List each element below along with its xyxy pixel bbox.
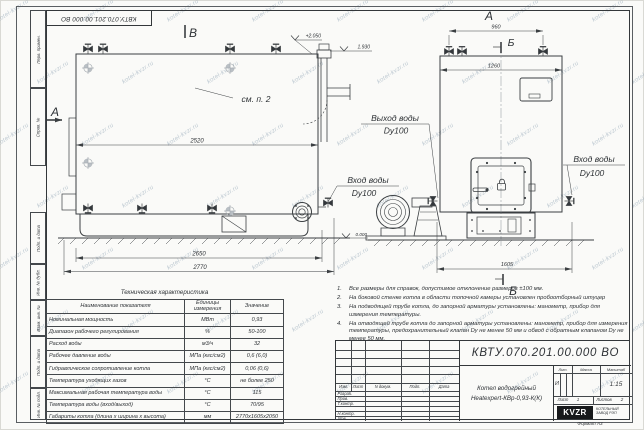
margin-field-label: Подп. и дата xyxy=(36,225,41,252)
title-block: КВТУ.070.201.00.000 ВО Изм. Лист N докум… xyxy=(335,340,630,420)
spec-cell: % xyxy=(185,326,231,338)
format-note: Формат А3 xyxy=(540,421,640,426)
spec-col-header: Значение xyxy=(231,299,284,314)
doc-number: КВТУ.070.201.00.000 ВО xyxy=(472,347,619,359)
spec-col-header: Наименование показателя xyxy=(47,299,185,314)
spec-cell: Гидравлическое сопротивление котла xyxy=(47,363,185,375)
spec-cell: 0,6 (6,0) xyxy=(231,351,284,363)
margin-field-label: Перв. примен. xyxy=(36,35,41,64)
spec-row: Расход водым3/ч32 xyxy=(47,338,284,350)
note-item: 1.Все размеры для справок, допустимое от… xyxy=(337,286,629,294)
spec-cell: 32 xyxy=(231,338,284,350)
sheets-label: Листов xyxy=(594,396,614,404)
margin-field-perv-primen: Перв. примен. xyxy=(30,10,46,88)
scale-label: Масштаб xyxy=(600,366,632,373)
spec-cell: не более 250 xyxy=(231,375,284,387)
spec-cell: 115 xyxy=(231,387,284,399)
product-name-cell: Котел водогрейный Heatexpert-КВр-0,93-К(… xyxy=(459,366,553,421)
spec-cell: 2770х1605х2050 xyxy=(231,411,284,423)
spec-cell: Температура уходящих газов xyxy=(47,375,185,387)
note-number: 2. xyxy=(337,295,349,303)
margin-field-label: Справ. № xyxy=(36,117,41,137)
notes-section: 1.Все размеры для справок, допустимое от… xyxy=(337,286,629,343)
company-line2: ЗАВОД РЭП xyxy=(596,411,630,415)
spec-row: Номинальная мощностьМВт0,93 xyxy=(47,314,284,326)
grid-line xyxy=(336,374,459,375)
sheets-value: 2 xyxy=(616,396,628,404)
corner-stamp-text: КВТУ.070.201.00.000 ВО xyxy=(61,15,137,22)
tb-col-izm: Изм. xyxy=(336,383,351,391)
note-number: 3. xyxy=(337,304,349,319)
spec-row: Максимальная рабочая температура воды°С1… xyxy=(47,387,284,399)
drawing-sheet: kotel-kvzr.rukotel-kvzr.rukotel-kvzr.ruk… xyxy=(0,0,644,430)
spec-cell: Расход воды xyxy=(47,338,185,350)
spec-header-row: Наименование показателя Единицы измерени… xyxy=(47,299,284,314)
spec-col-header: Единицы измерения xyxy=(185,299,231,314)
grid-line xyxy=(401,341,402,421)
grid-line xyxy=(429,341,430,421)
spec-cell: Рабочее давление воды xyxy=(47,351,185,363)
spec-cell: 70/95 xyxy=(231,399,284,411)
spec-cell: МПа (кгс/см2) xyxy=(185,363,231,375)
spec-cell: °С xyxy=(185,375,231,387)
doc-number-cell: КВТУ.070.201.00.000 ВО xyxy=(459,341,631,366)
spec-row: Гидравлическое сопротивление котлаМПа (к… xyxy=(47,363,284,375)
mass-label: Масса xyxy=(572,366,600,373)
spec-section: Техническая характеристика Наименование … xyxy=(46,289,283,424)
spec-row: Диапазон рабочего регулирования%50-100 xyxy=(47,326,284,338)
note-text: На подводящей трубе котла, до запорной а… xyxy=(349,304,629,319)
kvzr-logo: KVZR xyxy=(557,406,593,419)
tb-col-podp: Подп. xyxy=(401,383,429,391)
note-text: Все размеры для справок, допустимое откл… xyxy=(349,286,543,294)
tb-col-list: Лист xyxy=(351,383,365,391)
margin-field-vzam-inv: Взам. инв. № xyxy=(30,300,46,336)
margin-field-podp-data-1: Подп. и дата xyxy=(30,212,46,264)
spec-cell: Максимальная рабочая температура воды xyxy=(47,387,185,399)
margin-field-label: Взам. инв. № xyxy=(36,305,41,332)
grid-line xyxy=(336,358,459,359)
product-name-line1: Котел водогрейный xyxy=(477,384,536,393)
sheet-label: Лист xyxy=(555,396,571,404)
product-name-line2: Heatexpert-КВр-0,93-К(К) xyxy=(471,394,542,403)
note-item: 3.На подводящей трубе котла, до запорной… xyxy=(337,304,629,319)
note-text: На боковой стенке котла в области топочн… xyxy=(349,295,605,303)
company-name: КОТЕЛЬНЫЙ ЗАВОД РЭП xyxy=(596,407,630,416)
spec-row: Температура уходящих газов°Сне более 250 xyxy=(47,375,284,387)
spec-cell: 0,93 xyxy=(231,314,284,326)
note-number: 1. xyxy=(337,286,349,294)
spec-cell: °С xyxy=(185,387,231,399)
margin-field-sprav: Справ. № xyxy=(30,88,46,166)
tb-col-data: Дата xyxy=(429,383,459,391)
grid-line xyxy=(336,366,459,367)
spec-cell: Номинальная мощность xyxy=(47,314,185,326)
grid-line xyxy=(365,341,366,421)
margin-field-label: Инв. № подл. xyxy=(36,391,41,418)
margin-field-inv-dubl: Инв. № дубл. xyxy=(30,264,46,300)
spec-table-title: Техническая характеристика xyxy=(46,289,283,296)
grid-line xyxy=(336,350,459,351)
spec-row: Температура воды (вход/выход)°С70/95 xyxy=(47,399,284,411)
spec-cell: мм xyxy=(185,411,231,423)
sheet-value: 1 xyxy=(573,396,583,404)
lit-mass-scale-block: Лит. Масса Масштаб И 1:15 Лист 1 Листов … xyxy=(553,366,631,421)
lit-value: И xyxy=(554,373,560,396)
grid-line xyxy=(566,373,567,396)
spec-table: Наименование показателя Единицы измерени… xyxy=(46,299,284,425)
grid-line xyxy=(554,404,632,405)
spec-row: Рабочее давление водыМПа (кгс/см2)0,6 (6… xyxy=(47,351,284,363)
tb-col-dokum: N докум. xyxy=(365,383,401,391)
spec-cell: Габариты котла (длина х ширина х высота) xyxy=(47,411,185,423)
corner-stamp: КВТУ.070.201.00.000 ВО xyxy=(46,10,152,26)
margin-field-podp-data-2: Подп. и дата xyxy=(30,336,46,388)
scale-value: 1:15 xyxy=(600,373,632,396)
kvzr-logo-text: KVZR xyxy=(563,408,586,417)
lit-label: Лит. xyxy=(554,366,572,373)
spec-cell: 0,06 (0,6) xyxy=(231,363,284,375)
note-item: 2.На боковой стенке котла в области топо… xyxy=(337,295,629,303)
spec-cell: Диапазон рабочего регулирования xyxy=(47,326,185,338)
spec-cell: МПа (кгс/см2) xyxy=(185,351,231,363)
spec-cell: м3/ч xyxy=(185,338,231,350)
spec-cell: Температура воды (вход/выход) xyxy=(47,399,185,411)
margin-field-inv-podl: Инв. № подл. xyxy=(30,388,46,420)
margin-field-label: Инв. № дубл. xyxy=(36,269,41,295)
spec-row: Габариты котла (длина х ширина х высота)… xyxy=(47,411,284,423)
spec-cell: МВт xyxy=(185,314,231,326)
margin-field-label: Подп. и дата xyxy=(36,349,41,376)
tb-row-utv: Утв. xyxy=(338,416,365,421)
spec-cell: 50-100 xyxy=(231,326,284,338)
spec-cell: °С xyxy=(185,399,231,411)
grid-line xyxy=(560,373,561,396)
